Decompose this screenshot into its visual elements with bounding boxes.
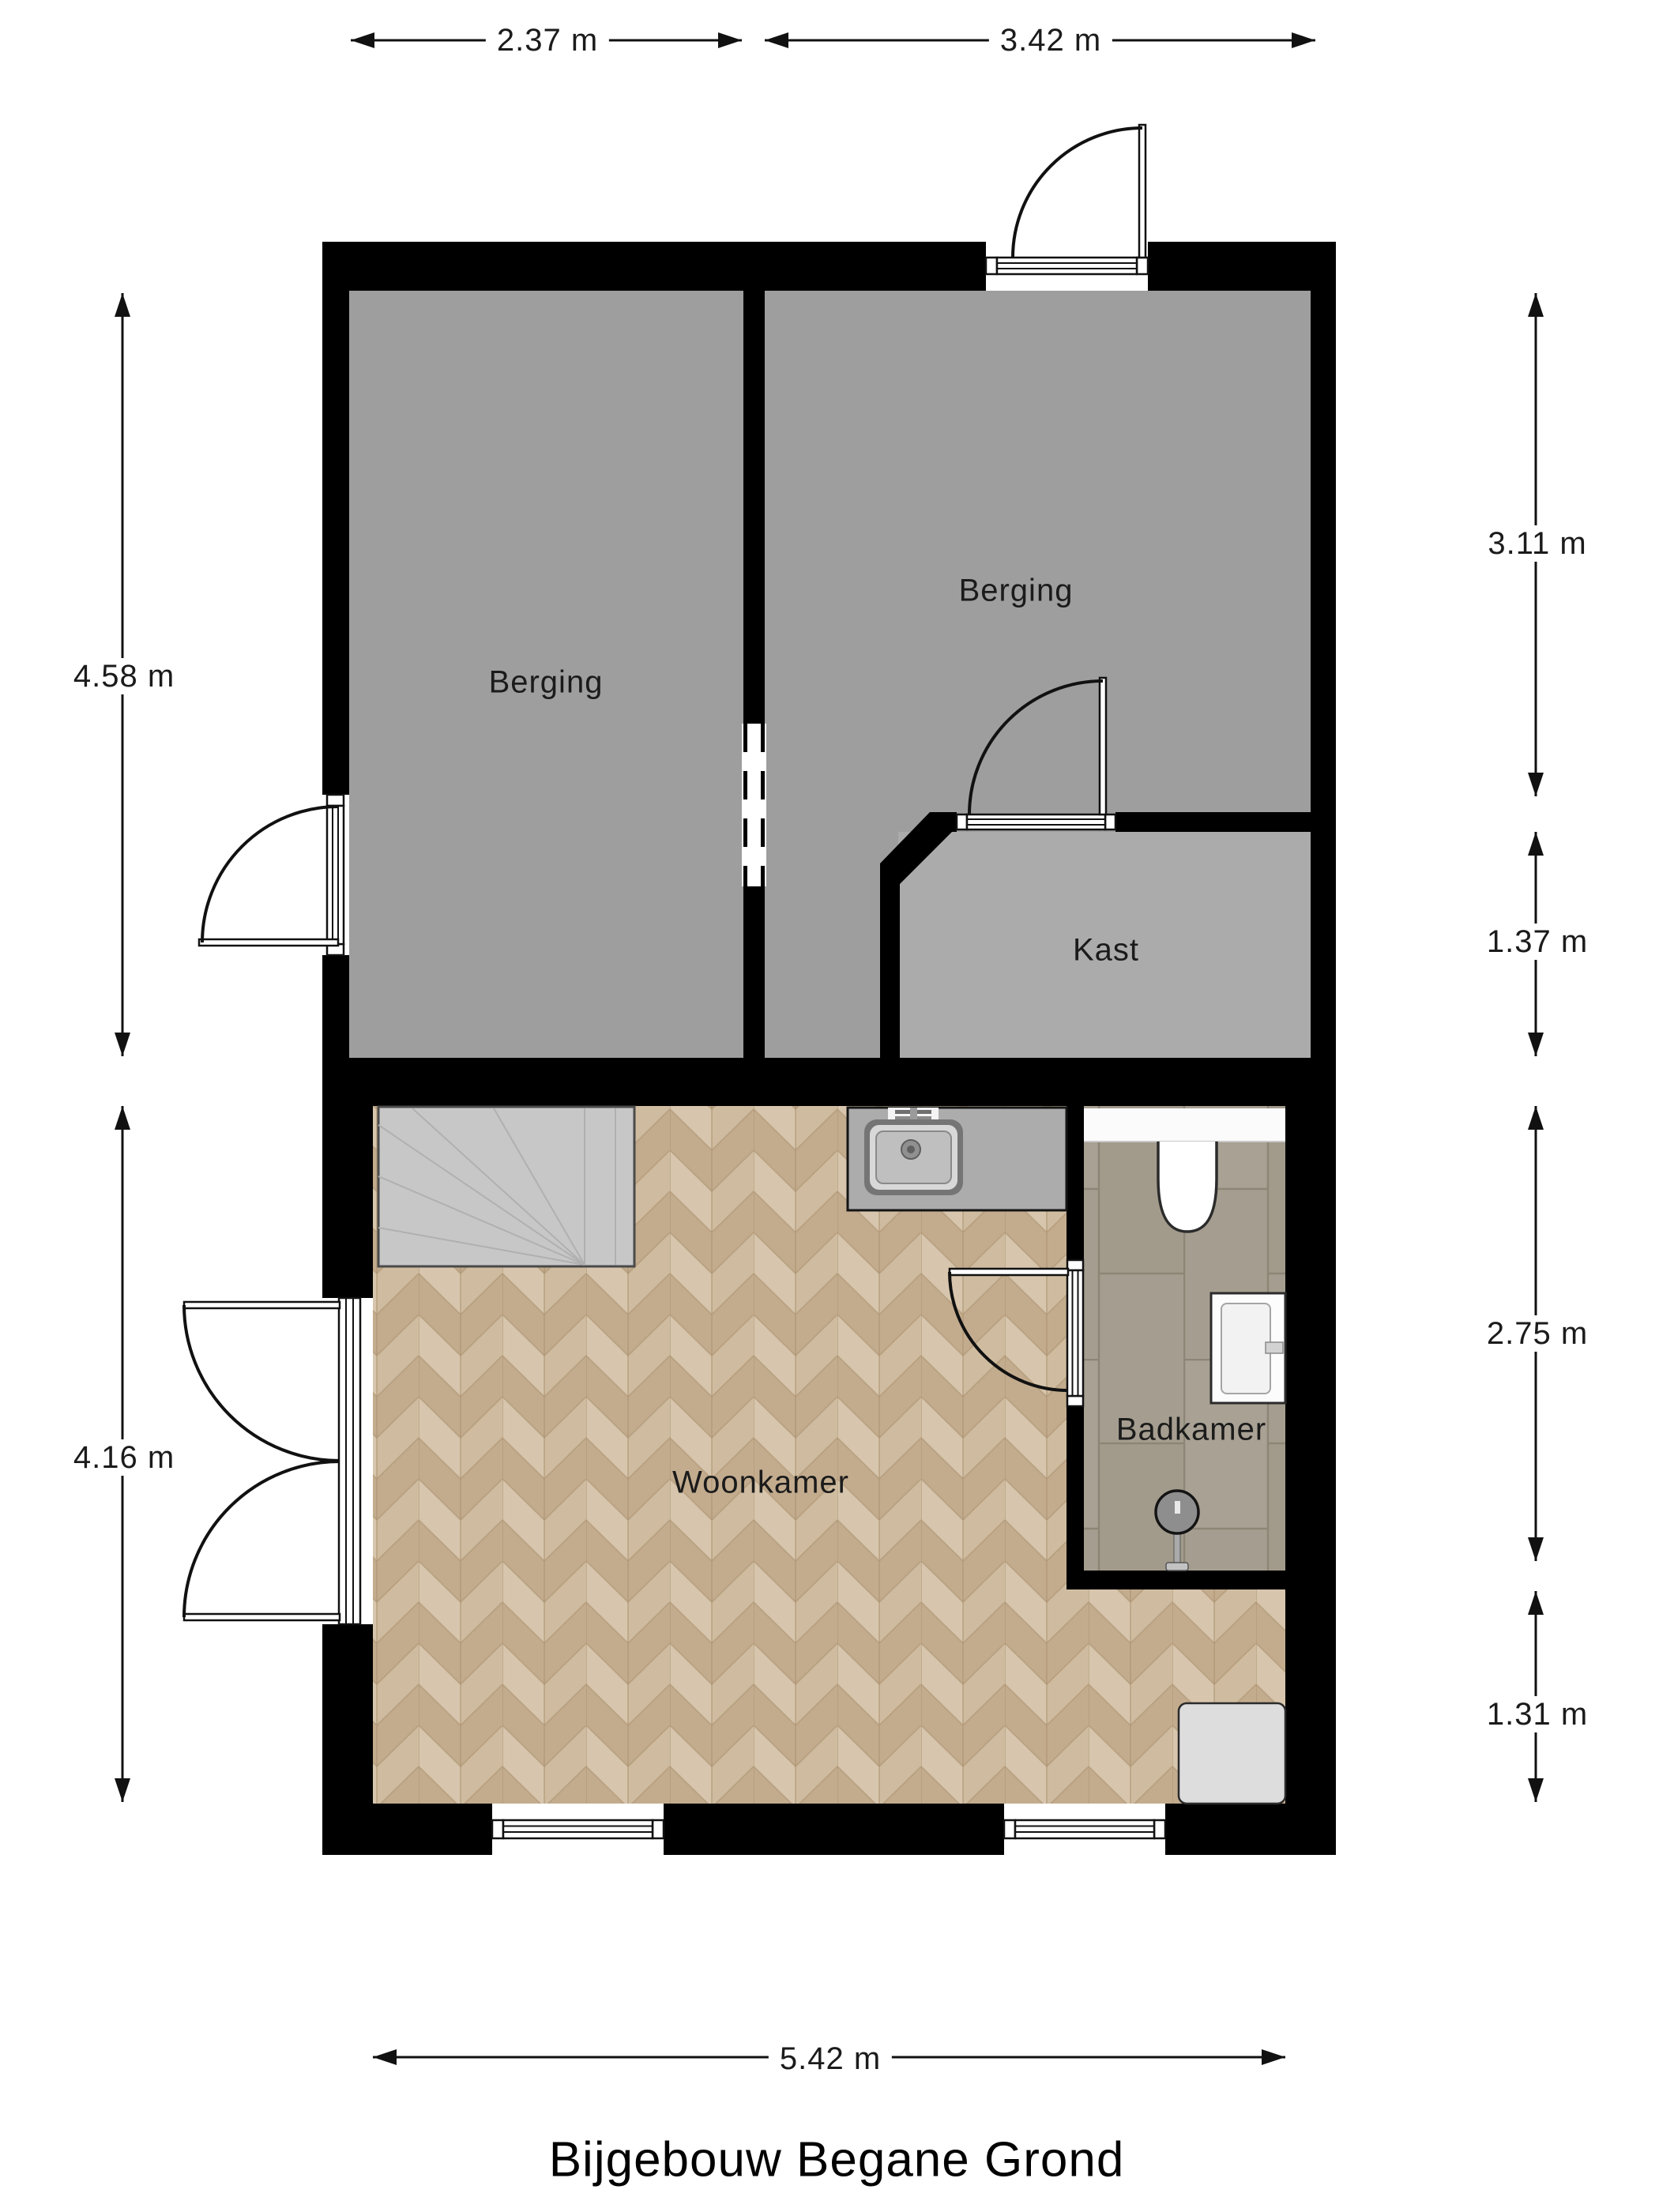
floorplan-drawing — [0, 0, 1659, 2212]
dim-label-bottom: 5.42 m — [769, 2041, 892, 2077]
room-label-kast: Kast — [1073, 933, 1139, 969]
door-berging-left-west — [199, 795, 344, 955]
door-swing-arc — [1013, 128, 1142, 258]
cabinet-box — [1179, 1703, 1285, 1804]
wall-west-upper-b — [322, 955, 349, 1058]
dim-label-right-4: 1.31 m — [1476, 1696, 1599, 1732]
kitchen-counter — [848, 1108, 1066, 1210]
door-swing-arc-bottom — [184, 1461, 340, 1617]
room-label-woonkamer: Woonkamer — [672, 1465, 849, 1501]
door-swing-arc-top — [184, 1305, 340, 1461]
dim-label-right-1: 3.11 m — [1477, 525, 1597, 562]
door-leaf — [1139, 125, 1145, 258]
window-south-right — [1004, 1820, 1165, 1838]
door-leaf — [1100, 678, 1106, 814]
wall-kast-left — [880, 863, 900, 1058]
dim-label-top-right: 3.42 m — [989, 22, 1112, 58]
wall-berging-divider-a — [743, 291, 765, 724]
wall-kast-door-right — [1115, 812, 1311, 832]
door-leaf-top — [184, 1302, 340, 1308]
room-label-berging-right: Berging — [959, 574, 1074, 609]
wall-top-left — [322, 242, 986, 291]
wall-badkamer-left-a — [1066, 1106, 1084, 1260]
toilet-bowl — [1158, 1142, 1217, 1232]
wall-bottom-a — [322, 1804, 492, 1855]
wall-middle — [322, 1058, 1336, 1106]
dim-label-left-lower: 4.16 m — [62, 1439, 186, 1476]
dim-label-right-2: 1.37 m — [1476, 924, 1599, 960]
dim-label-top-left: 2.37 m — [486, 22, 609, 58]
door-leaf — [199, 939, 338, 946]
dim-label-left-upper: 4.58 m — [62, 658, 186, 694]
wall-west-lower-a — [322, 1106, 373, 1298]
door-leaf-bottom — [184, 1614, 340, 1620]
toilet-cistern-shelf — [1084, 1108, 1285, 1142]
wall-bottom-c — [1165, 1804, 1336, 1855]
room-label-berging-left: Berging — [489, 665, 604, 701]
wall-badkamer-bottom — [1066, 1571, 1285, 1589]
door-leaf — [950, 1269, 1068, 1275]
room-label-badkamer: Badkamer — [1116, 1413, 1266, 1448]
window-south-left — [492, 1820, 664, 1838]
floorplan-page: 2.37 m 3.42 m 4.58 m 4.16 m 3.11 m 1.37 … — [0, 0, 1659, 2212]
bathtub-faucet — [1266, 1342, 1283, 1353]
dim-label-right-3: 2.75 m — [1476, 1315, 1599, 1352]
wall-berging-divider-b — [743, 886, 765, 1058]
wall-bottom-b — [664, 1804, 1004, 1855]
kitchen-sink — [864, 1119, 963, 1195]
wall-west-upper-a — [322, 291, 349, 795]
wall-east-upper — [1311, 291, 1336, 1058]
door-swing-arc — [202, 807, 338, 942]
stairs — [378, 1107, 634, 1266]
wall-east-lower — [1285, 1106, 1336, 1855]
page-title: Bijgebouw Begane Grond — [549, 2132, 1125, 2188]
wall-top-right — [1148, 242, 1336, 291]
wall-badkamer-left-b — [1066, 1406, 1084, 1589]
bathtub — [1211, 1293, 1285, 1403]
